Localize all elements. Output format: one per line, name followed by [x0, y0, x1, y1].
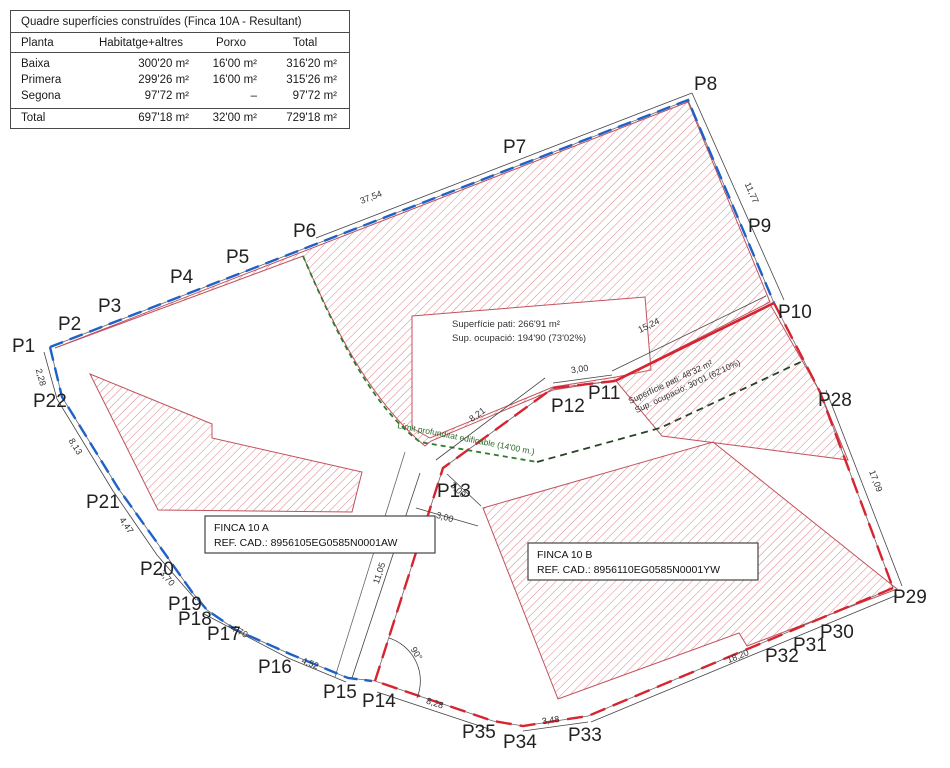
point-p32: P32	[765, 646, 799, 667]
dim-top: 37,54	[359, 188, 384, 205]
patio-a-surface: Superfície pati: 266'91 m²	[452, 319, 560, 330]
cell-planta: Baixa	[11, 58, 85, 70]
point-p28: P28	[818, 390, 852, 411]
cell-habitatge: 97'72 m²	[85, 90, 197, 102]
point-p4: P4	[170, 267, 194, 288]
point-p21: P21	[86, 492, 120, 513]
point-p33: P33	[568, 725, 602, 746]
cell-total: 315'26 m²	[265, 74, 345, 86]
table-row-baixa: Baixa 300'20 m² 16'00 m² 316'20 m²	[11, 56, 349, 72]
header-total: Total	[265, 37, 345, 49]
angle-90-label: 90°	[409, 645, 425, 662]
point-p13: P13	[437, 481, 471, 502]
point-p16: P16	[258, 657, 292, 678]
table-body: Baixa 300'20 m² 16'00 m² 316'20 m² Prime…	[11, 53, 349, 108]
cell-total: 729'18 m²	[265, 112, 345, 124]
finca-b-box: FINCA 10 B REF. CAD.: 8956110EG0585N0001…	[528, 543, 758, 580]
cell-habitatge: 299'26 m²	[85, 74, 197, 86]
finca-b-ref: REF. CAD.: 8956110EG0585N0001YW	[537, 564, 720, 576]
point-p10: P10	[778, 302, 812, 323]
cell-planta: Primera	[11, 74, 85, 86]
dim-p13-base: 3,00	[435, 510, 455, 524]
built-surfaces-table: Quadre superfícies construïdes (Finca 10…	[10, 10, 350, 129]
dim-p14-p13: 11,05	[371, 561, 387, 585]
cell-total: 97'72 m²	[265, 90, 345, 102]
point-p6: P6	[293, 221, 316, 242]
point-p7: P7	[503, 137, 526, 158]
point-p11: P11	[588, 383, 620, 404]
dim-p34-p33: 3,48	[541, 714, 560, 726]
dim-p12-p11: 3,00	[570, 363, 589, 375]
point-p19: P19	[168, 594, 202, 615]
point-p14: P14	[362, 691, 396, 712]
point-p20: P20	[140, 559, 174, 580]
point-p34: P34	[503, 732, 537, 753]
patio-a-occupation: Sup. ocupació: 194'90 (73'02%)	[452, 333, 586, 344]
point-p12: P12	[551, 396, 585, 417]
dim-p16-p15: 4,52	[300, 655, 320, 671]
header-planta: Planta	[11, 37, 85, 49]
point-p2: P2	[58, 314, 81, 335]
cell-porxo: 16'00 m²	[197, 58, 265, 70]
cell-habitatge: 300'20 m²	[85, 58, 197, 70]
header-porxo: Porxo	[197, 37, 265, 49]
point-p1: P1	[12, 336, 35, 357]
point-p9: P9	[748, 216, 771, 237]
point-p8: P8	[694, 74, 717, 95]
dim-p1-p22: 2,28	[34, 367, 48, 387]
table-row-segona: Segona 97'72 m² – 97'72 m²	[11, 88, 349, 104]
header-habitatge: Habitatge+altres	[85, 37, 197, 49]
cell-planta: Total	[11, 112, 85, 124]
table-title: Quadre superfícies construïdes (Finca 10…	[11, 11, 349, 33]
table-row-total: Total 697'18 m² 32'00 m² 729'18 m²	[11, 108, 349, 128]
dim-p33-p29: 18,20	[726, 647, 751, 665]
point-p22: P22	[33, 391, 67, 412]
finca-b-name: FINCA 10 B	[537, 549, 592, 561]
cadastral-plan-sheet: 37,54 11,77 15,24 17,09 2,28 8,13 4,47 3…	[0, 0, 950, 768]
cell-habitatge: 697'18 m²	[85, 112, 197, 124]
finca-a-box: FINCA 10 A REF. CAD.: 8956105EG0585N0001…	[205, 516, 435, 553]
cell-porxo: –	[197, 90, 265, 102]
point-p17: P17	[207, 624, 241, 645]
finca-a-ref: REF. CAD.: 8956105EG0585N0001AW	[214, 537, 398, 549]
cell-total: 316'20 m²	[265, 58, 345, 70]
dim-p21-p20: 4,47	[117, 515, 135, 535]
dim-p28-p29: 17,09	[867, 469, 884, 494]
point-p15: P15	[323, 682, 357, 703]
point-p29: P29	[893, 587, 927, 608]
finca-a-name: FINCA 10 A	[214, 522, 269, 534]
point-p3: P3	[98, 296, 121, 317]
dim-right-upper: 11,77	[743, 181, 761, 205]
point-p35: P35	[462, 722, 496, 743]
cell-planta: Segona	[11, 90, 85, 102]
table-header-row: Planta Habitatge+altres Porxo Total	[11, 33, 349, 53]
cell-porxo: 32'00 m²	[197, 112, 265, 124]
cell-porxo: 16'00 m²	[197, 74, 265, 86]
point-p5: P5	[226, 247, 249, 268]
table-row-primera: Primera 299'26 m² 16'00 m² 315'26 m²	[11, 72, 349, 88]
dim-p14-p35: 8,28	[425, 696, 445, 711]
building-finca10a-wing	[90, 374, 362, 512]
